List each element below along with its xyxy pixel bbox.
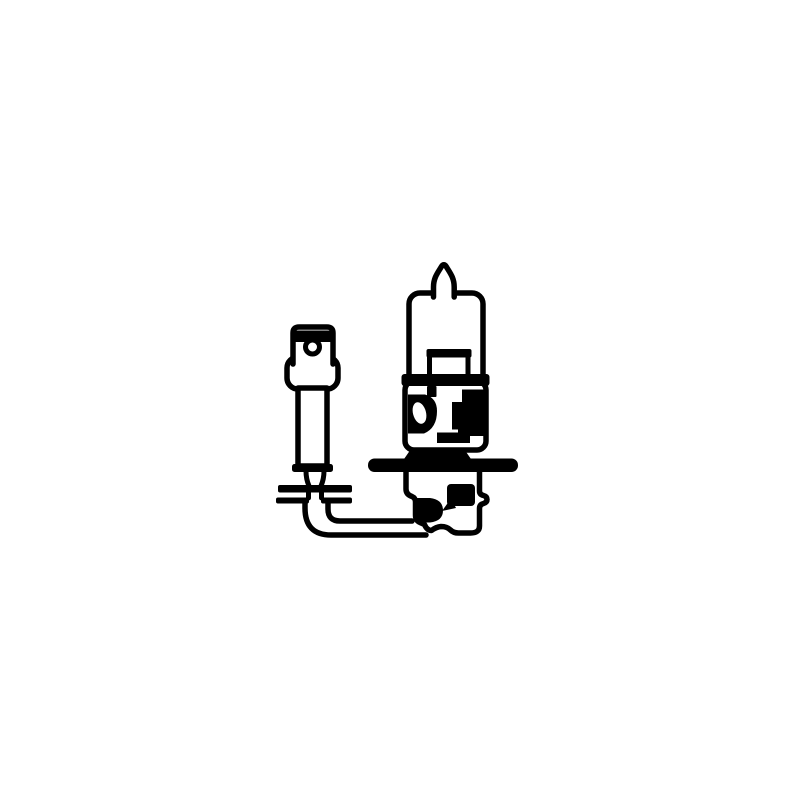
mounting-flange bbox=[368, 459, 518, 473]
terminal-hole bbox=[306, 340, 320, 354]
wire-inner-edge bbox=[328, 502, 412, 521]
canvas: H3 halogen bulb with flat spade connecto… bbox=[0, 0, 800, 800]
lower-shell-left-contact bbox=[416, 498, 443, 523]
wire-lead bbox=[305, 502, 426, 535]
wire-crimp-lower-right bbox=[321, 498, 352, 504]
terminal-shaft bbox=[298, 388, 327, 466]
base-top-bar bbox=[402, 374, 490, 386]
base-pedestal bbox=[437, 433, 470, 444]
terminal-neck-left bbox=[306, 471, 309, 486]
filament-mount-bar bbox=[427, 349, 472, 358]
h3-bulb-drawing: H3 halogen bulb with flat spade connecto… bbox=[0, 0, 800, 800]
wire-crimp-lower-left bbox=[276, 498, 309, 504]
terminal-foot bbox=[292, 464, 333, 472]
base-wall-stub bbox=[427, 386, 437, 397]
terminal-neck-right bbox=[321, 471, 324, 486]
sealing-tip bbox=[434, 265, 455, 297]
glass-envelope bbox=[409, 293, 483, 385]
h3-bulb-illustration: H3 halogen bulb with flat spade connecto… bbox=[0, 0, 800, 800]
spade-terminal bbox=[276, 327, 352, 504]
wire-crimp-upper bbox=[278, 485, 352, 493]
bulb bbox=[368, 265, 518, 533]
